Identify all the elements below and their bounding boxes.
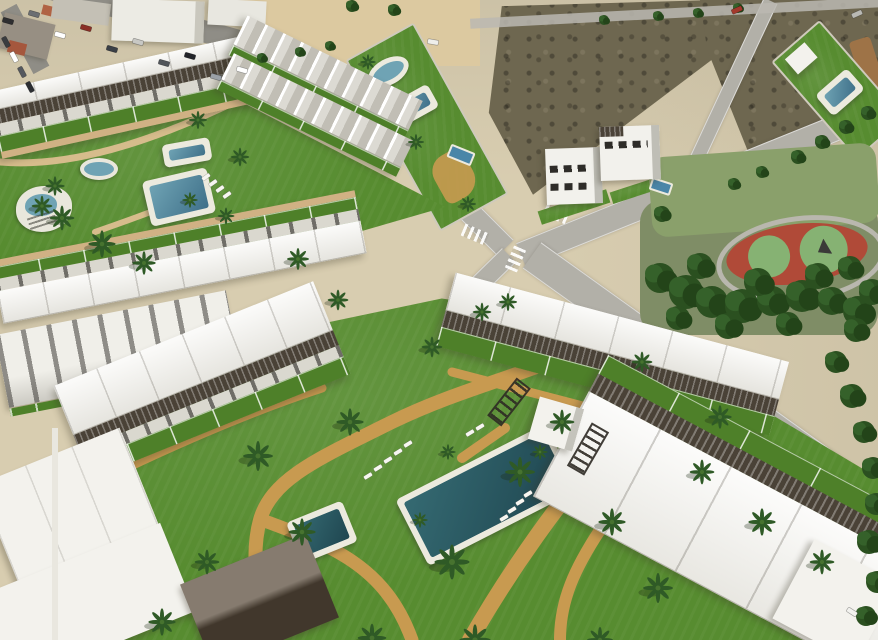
detached-villa — [545, 147, 603, 205]
city-building-white-large — [111, 0, 204, 44]
pond-water — [84, 162, 114, 176]
pool-water — [168, 144, 205, 161]
villa-windows — [551, 182, 592, 190]
pool-water — [149, 174, 209, 219]
villa-pergola — [599, 126, 623, 137]
pool-hut — [785, 42, 818, 74]
boundary-wall — [52, 428, 58, 640]
oval-pond — [80, 158, 118, 180]
community-pool-right — [815, 68, 865, 117]
villa-windows — [604, 140, 647, 149]
villa-windows — [550, 164, 591, 172]
playground-circle — [746, 233, 793, 280]
pool-water — [823, 76, 856, 108]
aerial-render-residential-development — [0, 0, 878, 640]
detached-villa — [599, 125, 661, 181]
